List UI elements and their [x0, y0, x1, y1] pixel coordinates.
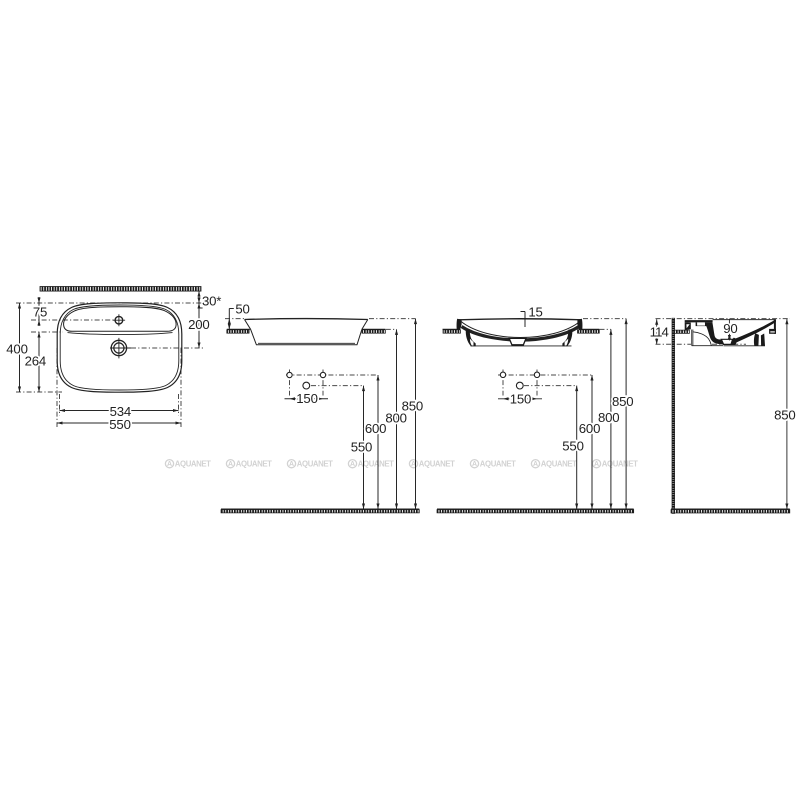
svg-text:200: 200 — [188, 317, 209, 332]
svg-text:550: 550 — [109, 417, 130, 432]
svg-text:550: 550 — [351, 439, 372, 454]
svg-text:90: 90 — [723, 321, 737, 336]
svg-text:550: 550 — [562, 438, 583, 453]
svg-text:264: 264 — [25, 354, 46, 369]
svg-text:30*: 30* — [202, 293, 221, 308]
svg-text:150: 150 — [296, 391, 317, 406]
svg-text:600: 600 — [365, 421, 386, 436]
svg-text:50: 50 — [235, 302, 249, 317]
svg-text:850: 850 — [402, 399, 423, 414]
svg-text:850: 850 — [612, 394, 633, 409]
svg-text:75: 75 — [33, 304, 47, 319]
svg-text:15: 15 — [528, 304, 542, 319]
svg-text:150: 150 — [510, 392, 531, 407]
svg-text:850: 850 — [774, 408, 795, 423]
svg-text:800: 800 — [598, 410, 619, 425]
svg-text:600: 600 — [579, 421, 600, 436]
svg-text:114: 114 — [650, 324, 669, 339]
